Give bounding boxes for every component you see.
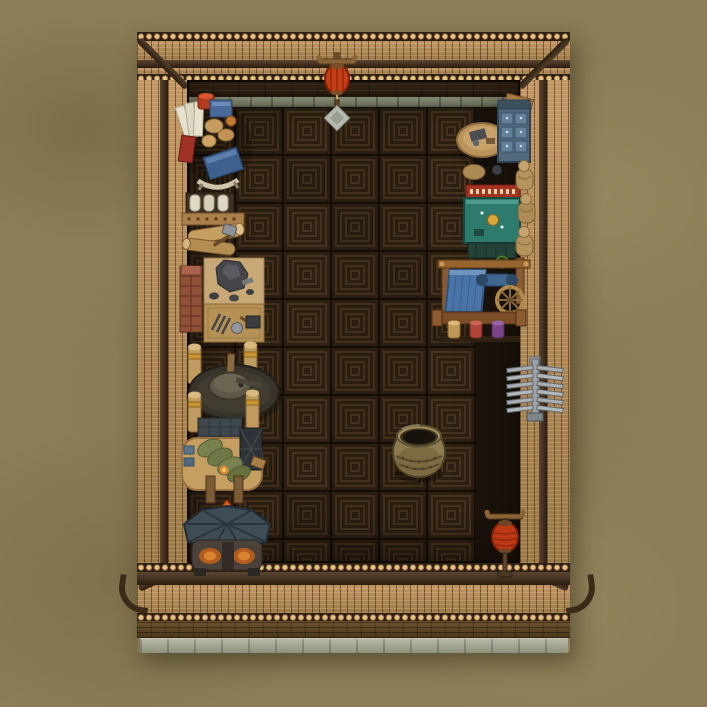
roof-cap-row-bottom (137, 613, 570, 621)
floor-tile (283, 251, 331, 299)
wooden-statues[interactable] (508, 160, 544, 260)
thread-spool-icon (492, 321, 504, 339)
lumber-rack-station[interactable] (182, 192, 254, 260)
floor-tile (379, 347, 427, 395)
floor-tile (283, 347, 331, 395)
standing-lantern-bottom[interactable] (485, 510, 525, 578)
roof-slope-bottom (137, 585, 570, 613)
floor-tile (331, 395, 379, 443)
floor-tile (379, 107, 427, 155)
vat-opening-icon (403, 430, 435, 444)
smelting-furnace-station[interactable] (180, 500, 274, 578)
floor-tile (283, 395, 331, 443)
weaving-loom-station[interactable] (432, 248, 534, 344)
thread-spool-icon (448, 321, 460, 339)
stone-path (140, 638, 568, 653)
stool-icon (463, 165, 485, 180)
statue-icon (518, 194, 535, 224)
floor-tile (379, 491, 427, 539)
floor-tile (331, 251, 379, 299)
floor-tile (283, 539, 331, 563)
scribe-desk-station[interactable] (178, 94, 258, 190)
wall-left-beam (160, 80, 168, 563)
standing-lantern-top[interactable] (317, 52, 357, 134)
floor-tile (283, 491, 331, 539)
floor-tile (379, 155, 427, 203)
floor-tile (331, 491, 379, 539)
wall-left-tiles-outer (137, 80, 160, 563)
floor-tile (379, 251, 427, 299)
floor-tile (331, 155, 379, 203)
roof-cap-row (137, 32, 570, 41)
stonecutting-station[interactable] (180, 258, 270, 342)
statue-icon (516, 161, 533, 191)
floor-tile (331, 299, 379, 347)
floor-tile (331, 203, 379, 251)
floor-tile (283, 155, 331, 203)
processing-bench-station[interactable] (182, 418, 276, 508)
spinning-wheel-icon (497, 287, 523, 313)
game-scene (0, 0, 707, 707)
floor-tile (427, 347, 475, 395)
wall-right-beam (539, 80, 547, 563)
floor-tile (427, 539, 475, 563)
wall-right-tiles-outer (547, 80, 570, 563)
toolbox-icon (246, 316, 260, 328)
floor-tile (379, 299, 427, 347)
floor-tile (331, 539, 379, 563)
ceramic-vat[interactable] (390, 416, 448, 482)
floor-tile (283, 299, 331, 347)
floor-tile (283, 443, 331, 491)
floor-tile (379, 539, 427, 563)
log-icon (182, 237, 236, 255)
thread-spool-icon (470, 321, 482, 339)
floor-tile (379, 203, 427, 251)
floor-tile (331, 443, 379, 491)
brick-base-wall (137, 621, 570, 638)
weapon-rack[interactable] (505, 357, 565, 421)
floor-tile (283, 203, 331, 251)
floor-tile (427, 491, 475, 539)
floor-tile (331, 347, 379, 395)
lantern-icon (492, 522, 518, 552)
